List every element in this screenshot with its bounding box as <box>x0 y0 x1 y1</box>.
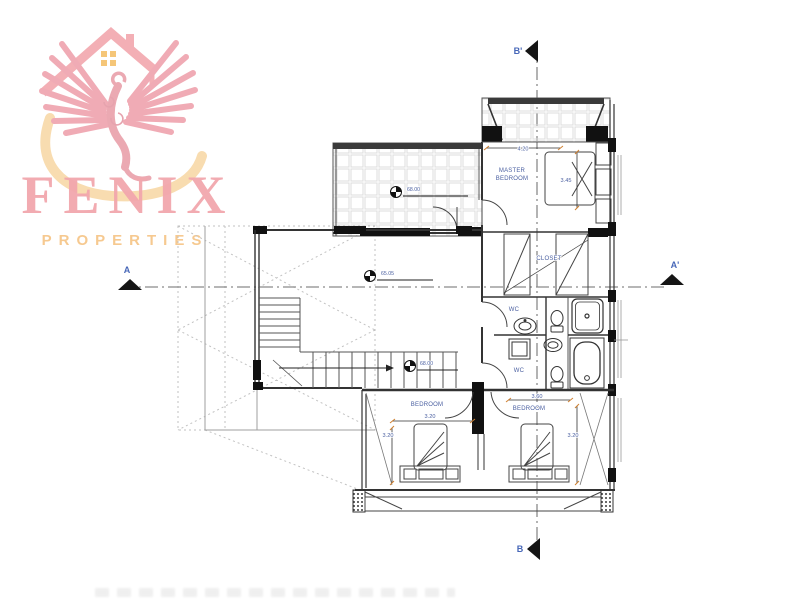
bed-icon <box>509 424 569 482</box>
section-marker-a-icon <box>118 279 142 290</box>
toilet-icon <box>551 367 563 389</box>
room-label-master-2: BEDROOM <box>496 176 528 182</box>
dimension-bedroom-left-width: 3.20 <box>390 414 475 423</box>
section-marker-b-prime-icon <box>525 40 538 62</box>
door-arc <box>482 200 507 225</box>
faint-watermark-artifact <box>95 588 455 597</box>
sink-icon <box>514 318 536 334</box>
lower-floor-wall-outline <box>205 226 375 430</box>
dim-value: 3.45 <box>561 178 572 184</box>
section-label-b-prime: B' <box>514 46 523 56</box>
shower-icon <box>572 299 603 333</box>
room-label-wc-upper: WC <box>509 307 520 313</box>
dim-value: 3.20 <box>425 414 436 420</box>
level-value: 68.00 <box>407 187 420 193</box>
toilet-icon <box>551 311 563 333</box>
terrace-top-left: 68.00 <box>333 143 482 236</box>
spot-level-icon <box>405 361 416 372</box>
level-value: 65.05 <box>381 271 394 277</box>
dimension-bedroom-right-width: 3.60 <box>506 394 573 402</box>
section-marker-a-prime-icon <box>660 274 684 285</box>
spot-level-icon <box>391 187 402 198</box>
dim-value: 3.20 <box>568 433 579 439</box>
bed-icon <box>545 143 611 223</box>
dim-value: 3.20 <box>383 433 394 439</box>
stair-direction-arrow-icon <box>386 365 394 372</box>
spot-level-stair: 68.00 <box>405 361 459 372</box>
bed-icon <box>400 424 460 482</box>
spot-level-icon <box>365 271 376 282</box>
door-arc <box>482 302 507 388</box>
section-marker-b-icon <box>527 538 540 560</box>
balcony-bottom <box>353 490 615 512</box>
dim-value: 3.60 <box>532 394 543 400</box>
section-label-a: A <box>124 265 131 275</box>
room-label-wc-lower: WC <box>514 368 525 374</box>
level-value: 68.00 <box>420 361 433 367</box>
bedrooms-lower: 3.20 3.60 3.20 3.20 BEDROOM BEDROOM <box>362 382 614 490</box>
master-bedroom: 4.20 3.45 MASTER BEDROOM <box>482 142 611 237</box>
room-label-master-1: MASTER <box>499 168 526 174</box>
room-label-bedroom-right: BEDROOM <box>513 406 545 412</box>
room-label-closet: CLOSET <box>536 256 561 262</box>
section-label-b: B <box>517 544 524 554</box>
dimension-bedroom-left-depth: 3.20 <box>383 426 394 485</box>
section-line-aa: A A' <box>118 260 684 290</box>
dim-value: 4.20 <box>518 147 529 153</box>
living-area: 65.05 68.00 <box>253 226 482 390</box>
shower-tray-icon <box>509 339 530 359</box>
room-label-bedroom-left: BEDROOM <box>411 402 443 408</box>
floorplan-page: FENIX PROPERTIES <box>0 0 800 600</box>
wardrobe-icon <box>504 234 588 295</box>
roof-outline-dashed <box>178 226 375 490</box>
section-label-a-prime: A' <box>671 260 680 270</box>
staircase <box>259 298 458 388</box>
floor-plan-drawing: A A' B' B <box>0 0 800 600</box>
master-balcony <box>482 98 610 142</box>
bathtub-icon <box>570 338 604 388</box>
dimension-master-depth: 3.45 <box>561 150 579 210</box>
